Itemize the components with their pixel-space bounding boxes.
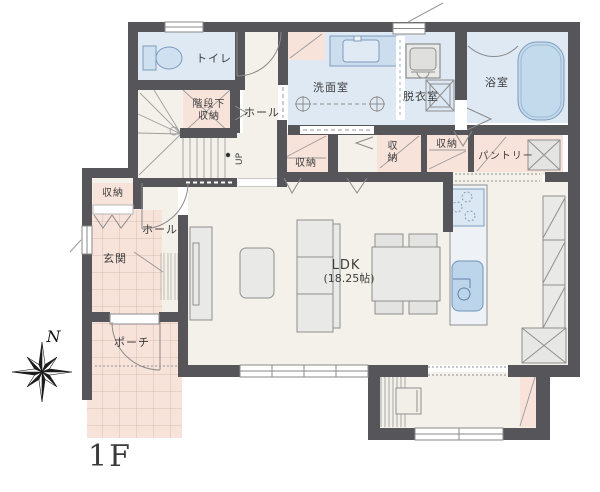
label-porch: ポーチ	[114, 337, 150, 349]
label-washroom: 洗面室	[313, 82, 349, 94]
stairs-up-dot	[226, 153, 230, 157]
label-dressing-room: 脱衣室	[403, 91, 439, 103]
porch-outer-grid	[87, 376, 182, 438]
label-under-stair-storage: 階段下 収納	[193, 99, 226, 123]
refrigerator-space	[522, 328, 566, 363]
label-storage-side: 収納	[436, 139, 458, 151]
porch-grid	[92, 322, 178, 376]
label-ldk: LDK	[332, 260, 361, 272]
floor-label: 1F	[88, 451, 132, 463]
label-under-stair-line2: 収納	[193, 111, 226, 123]
entrance-side-window	[82, 226, 92, 254]
label-storage-hall: 収納	[295, 158, 317, 170]
label-toilet: トイレ	[196, 53, 232, 65]
tall-cabinets	[543, 196, 565, 330]
storage-hall-floor	[287, 133, 328, 177]
label-pantry: パントリー	[478, 151, 534, 163]
toilet-fixture	[143, 46, 182, 70]
label-stairs-up: UP	[234, 153, 246, 165]
porch-door-leaf	[110, 314, 159, 324]
vent-annotation-line	[408, 3, 443, 22]
floor-plan-1f: トイレ ホール 階段下 収納 UP 洗面室 脱衣室 浴室 収納 収納 収納 パン…	[0, 0, 600, 492]
compass-rose	[12, 342, 72, 402]
coffee-table	[240, 248, 274, 298]
label-hall-lower: ホール	[142, 224, 178, 236]
kitchen-sink	[452, 261, 483, 311]
corridor-floor	[338, 133, 377, 172]
washing-machine	[406, 44, 440, 78]
toilet-window	[165, 22, 203, 32]
floor-plan-drawing	[0, 0, 600, 492]
lower-room-bench	[396, 388, 421, 414]
ldk-south-window	[240, 365, 368, 377]
top-vent-window	[393, 23, 425, 34]
tv-board	[190, 227, 212, 320]
kitchen-counter	[450, 185, 487, 325]
label-bathroom: 浴室	[485, 77, 509, 89]
dining-table	[372, 247, 440, 301]
washroom-vanity	[330, 36, 397, 66]
compass-north-label: N	[47, 331, 62, 343]
label-hall-upper: ホール	[244, 107, 280, 119]
window-annotation-line	[70, 240, 81, 252]
hall-ldk-opening	[238, 178, 277, 187]
bath-door-opening	[455, 100, 467, 130]
label-storage-mid: 収納	[384, 140, 396, 164]
label-under-stair-line1: 階段下	[193, 99, 226, 111]
label-storage-entrance: 収納	[102, 188, 124, 200]
label-entrance: 玄関	[103, 253, 127, 265]
label-ldk-size: (18.25帖)	[323, 273, 374, 285]
lower-room-window	[415, 428, 503, 440]
